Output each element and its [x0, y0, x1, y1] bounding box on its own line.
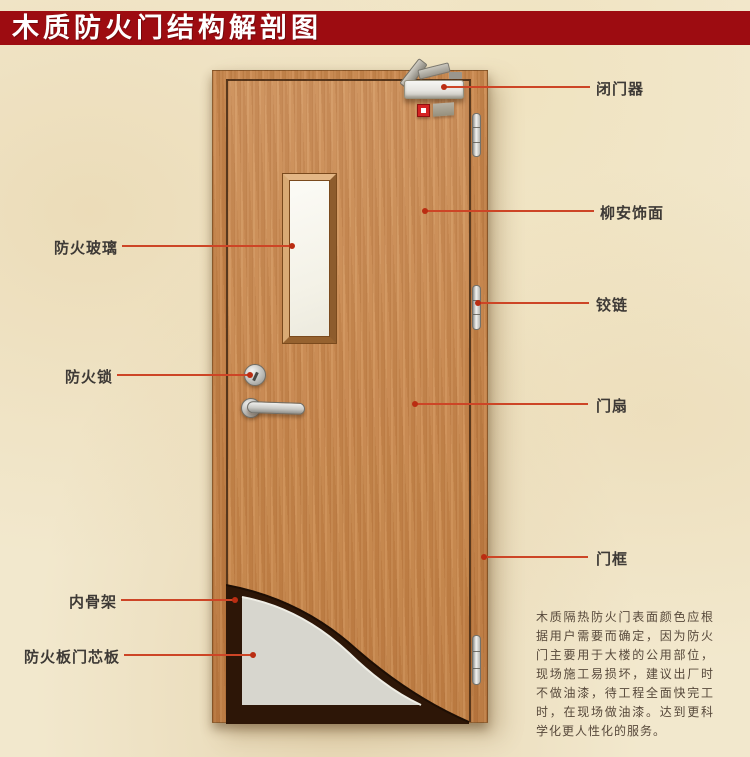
- label-fire-lock: 防火锁: [18, 366, 113, 387]
- line-dot: [247, 372, 253, 378]
- strike-plate: [433, 102, 454, 116]
- label-door-frame: 门框: [596, 548, 628, 569]
- hinge-bottom: [472, 635, 481, 685]
- label-door-closer: 闭门器: [596, 78, 644, 99]
- door-handle: [247, 401, 305, 415]
- line-dot: [481, 554, 487, 560]
- door-frame: [212, 70, 488, 723]
- door-closer: [404, 80, 464, 99]
- annotation-line-door-closer: [443, 86, 590, 88]
- infographic-canvas: 木质防火门结构解剖图 防火玻璃 防火锁 内骨架 防火板门: [0, 0, 750, 757]
- annotation-line-door-leaf: [414, 403, 588, 405]
- line-dot: [250, 652, 256, 658]
- title-banner: 木质防火门结构解剖图: [0, 11, 750, 45]
- line-dot: [289, 243, 295, 249]
- line-dot: [232, 597, 238, 603]
- label-lauan-veneer: 柳安饰面: [600, 202, 664, 223]
- label-inner-skeleton: 内骨架: [18, 591, 117, 612]
- annotation-line-fire-glass: [122, 245, 293, 247]
- line-dot: [422, 208, 428, 214]
- line-dot: [441, 84, 447, 90]
- line-dot: [412, 401, 418, 407]
- annotation-line-lauan-veneer: [424, 210, 594, 212]
- label-hinge: 铰链: [596, 294, 628, 315]
- hinge-top: [472, 113, 481, 157]
- annotation-line-hinge: [477, 302, 589, 304]
- label-door-leaf: 门扇: [596, 395, 628, 416]
- page-title: 木质防火门结构解剖图: [12, 11, 322, 45]
- alarm-indicator: [417, 104, 430, 117]
- description-text: 木质隔热防火门表面颜色应根据用户需要而确定，因为防火门主要用于大楼的公用部位，现…: [536, 608, 714, 741]
- label-fire-glass: 防火玻璃: [18, 237, 118, 258]
- hinge-middle: [472, 285, 481, 330]
- cutaway-section: [226, 579, 473, 724]
- label-fire-board-core: 防火板门芯板: [8, 646, 120, 667]
- glass-window: [283, 174, 336, 343]
- annotation-line-fire-lock: [117, 374, 251, 376]
- annotation-line-fire-board-core: [124, 654, 254, 656]
- annotation-line-inner-skeleton: [121, 599, 236, 601]
- annotation-line-door-frame: [483, 556, 588, 558]
- door-closer-mount: [449, 72, 462, 79]
- line-dot: [475, 300, 481, 306]
